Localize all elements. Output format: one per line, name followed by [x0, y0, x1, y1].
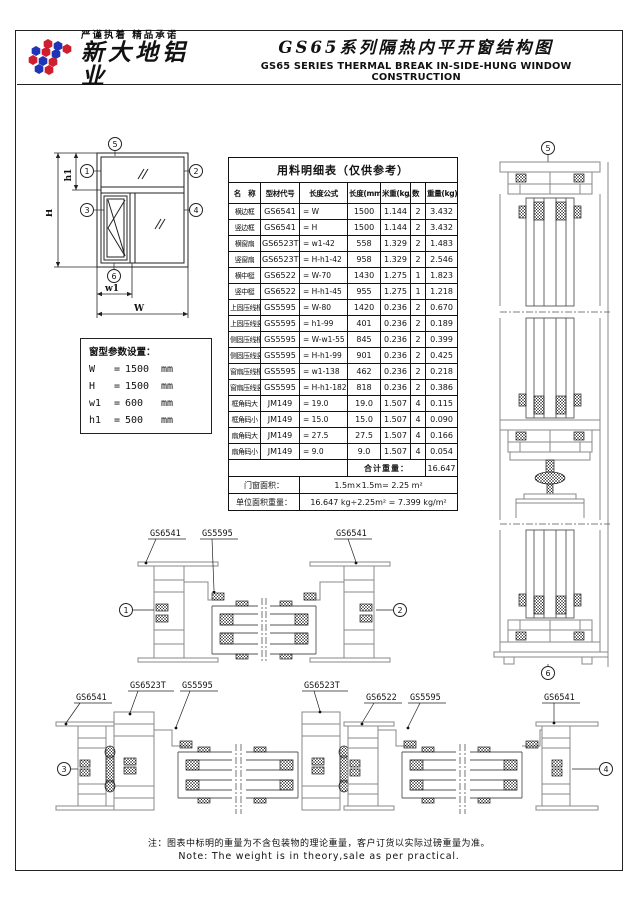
cell-length: 1420 [348, 300, 381, 316]
cell-length: 845 [348, 332, 381, 348]
callout-1: 1 [84, 167, 89, 176]
cell-length: 462 [348, 364, 381, 380]
cell-weight: 0.115 [426, 396, 458, 412]
cell-meter-weight: 1.329 [381, 252, 411, 268]
column-header: 长度(mm) [348, 183, 381, 204]
callout-2: 2 [397, 606, 402, 615]
cell-length-formula: = W-80 [300, 300, 348, 316]
profile-label: GS5595 [202, 529, 233, 539]
cell-length-formula: = H-h1-42 [300, 252, 348, 268]
total-label: 合计重量： [348, 460, 426, 477]
cell-profile-code: GS6522 [261, 284, 300, 300]
footer-note: 注：图表中标明的重量为不含包装物的理论重量，客户订货以实际过磅重量为准。 Not… [17, 836, 621, 862]
cell-name: 竖边框 [229, 220, 261, 236]
callout-5: 5 [112, 140, 117, 149]
table-row: 侧固压线横 GS5595 = W-w1-55 845 0.236 2 0.399 [229, 332, 458, 348]
cell-profile-code: GS5595 [261, 380, 300, 396]
cell-profile-code: GS5595 [261, 332, 300, 348]
cell-meter-weight: 1.507 [381, 428, 411, 444]
param-row: H = 1500 mm [89, 378, 203, 395]
table-row: 横窗扇 GS6523T = w1-42 558 1.329 2 1.483 [229, 236, 458, 252]
sheet-title-cn: GS65系列隔热内平开窗结构图 [215, 34, 617, 58]
cell-length-formula: = 9.0 [300, 444, 348, 460]
cell-length: 1500 [348, 220, 381, 236]
param-value: 1500 [125, 381, 161, 392]
param-row: w1 = 600 mm [89, 395, 203, 412]
cell-length-formula: = h1-99 [300, 316, 348, 332]
cell-qty: 4 [411, 428, 426, 444]
cell-profile-code: GS5595 [261, 316, 300, 332]
column-header: 名 称 [229, 183, 261, 204]
param-unit: mm [161, 415, 173, 426]
param-unit: mm [161, 381, 173, 392]
cell-weight: 0.166 [426, 428, 458, 444]
section-1-drawing [138, 562, 262, 662]
table-row: 侧固压线竖 GS5595 = H-h1-99 901 0.236 2 0.425 [229, 348, 458, 364]
drawing-sheet: 严谨执着 精品承诺 新大地铝业 GS65系列隔热内平开窗结构图 GS65 SER… [0, 0, 640, 906]
column-header: 重量(kg) [426, 183, 458, 204]
cell-meter-weight: 1.275 [381, 268, 411, 284]
table-row: 竖窗扇 GS6523T = H-h1-42 958 1.329 2 2.546 [229, 252, 458, 268]
cell-meter-weight: 0.236 [381, 380, 411, 396]
cell-length-formula: = 27.5 [300, 428, 348, 444]
title-block: GS65系列隔热内平开窗结构图 GS65 SERIES THERMAL BREA… [215, 34, 621, 83]
param-name: h1 [89, 415, 109, 426]
cell-name: 窗扇压线竖 [229, 380, 261, 396]
cell-name: 竖中梃 [229, 284, 261, 300]
window-elevation-diagram: H h1 W w1 5 1 [46, 130, 236, 335]
table-body: 横边框 GS6541 = W 1500 1.144 2 3.432 竖边框 GS… [229, 204, 458, 460]
section-2-drawing [266, 562, 390, 662]
profile-label: GS6541 [150, 529, 181, 539]
cell-qty: 2 [411, 348, 426, 364]
cell-length: 9.0 [348, 444, 381, 460]
param-equals: = [109, 364, 125, 375]
area-label: 门窗面积： [229, 477, 300, 494]
profile-label: GS6541 [76, 693, 107, 703]
cell-length-formula: = w1-42 [300, 236, 348, 252]
unit-weight-label: 单位面积重量： [229, 494, 300, 511]
callout-6: 6 [111, 272, 116, 281]
column-header: 数 量 [411, 183, 426, 204]
cell-weight: 0.090 [426, 412, 458, 428]
cell-length: 19.0 [348, 396, 381, 412]
param-unit: mm [161, 398, 173, 409]
cell-meter-weight: 0.236 [381, 316, 411, 332]
cell-name: 框角码小 [229, 412, 261, 428]
cell-weight: 0.670 [426, 300, 458, 316]
dim-label-h1: h1 [64, 169, 74, 182]
cell-qty: 2 [411, 380, 426, 396]
total-value: 16.647 [426, 460, 458, 477]
cell-length: 558 [348, 236, 381, 252]
area-value: 1.5m×1.5m= 2.25 m² [300, 477, 458, 494]
param-equals: = [109, 381, 125, 392]
cell-length-formula: = W-70 [300, 268, 348, 284]
area-row: 门窗面积： 1.5m×1.5m= 2.25 m² [229, 477, 458, 494]
cell-qty: 2 [411, 220, 426, 236]
cell-qty: 2 [411, 316, 426, 332]
cell-name: 横窗扇 [229, 236, 261, 252]
cell-weight: 2.546 [426, 252, 458, 268]
cell-length-formula: = H-h1-99 [300, 348, 348, 364]
cell-length-formula: = 15.0 [300, 412, 348, 428]
param-value: 600 [125, 398, 161, 409]
cell-length-formula: = w1-138 [300, 364, 348, 380]
cell-name: 扇角码大 [229, 428, 261, 444]
cell-length: 27.5 [348, 428, 381, 444]
cell-qty: 4 [411, 444, 426, 460]
cell-length: 1500 [348, 204, 381, 220]
cell-meter-weight: 1.507 [381, 412, 411, 428]
param-value: 500 [125, 415, 161, 426]
sheet-title-en: GS65 SERIES THERMAL BREAK IN-SIDE-HUNG W… [215, 61, 617, 83]
cell-name: 横中梃 [229, 268, 261, 284]
table-row: 横边框 GS6541 = W 1500 1.144 2 3.432 [229, 204, 458, 220]
cell-profile-code: JM149 [261, 412, 300, 428]
cell-length-formula: = H-h1-45 [300, 284, 348, 300]
table-header-row: 名 称型材代号长度公式长度(mm)米重(kg/m)数 量重量(kg) [229, 183, 458, 204]
section-top-frame [500, 162, 600, 306]
param-name: W [89, 364, 109, 375]
profile-label: GS6523T [304, 681, 340, 691]
window-outline [97, 153, 188, 267]
params-title: 窗型参数设置： [89, 344, 203, 358]
dim-label-H: H [46, 208, 55, 217]
header: 严谨执着 精品承诺 新大地铝业 GS65系列隔热内平开窗结构图 GS65 SER… [17, 32, 621, 85]
cell-weight: 3.432 [426, 204, 458, 220]
section-middle-mullion [246, 712, 456, 810]
params-list: W = 1500 mm H = 1500 mm w1 = 600 mm [89, 361, 203, 429]
cell-profile-code: GS6541 [261, 204, 300, 220]
cell-name: 框角码大 [229, 396, 261, 412]
profile-label: GS6541 [336, 529, 367, 539]
unit-weight-row: 单位面积重量： 16.647 kg÷2.25m² = 7.399 kg/m² [229, 494, 458, 511]
cell-weight: 0.189 [426, 316, 458, 332]
cell-profile-code: GS6522 [261, 268, 300, 284]
column-header: 型材代号 [261, 183, 300, 204]
cell-length: 958 [348, 252, 381, 268]
cell-meter-weight: 0.236 [381, 348, 411, 364]
table-row: 竖边框 GS6541 = H 1500 1.144 2 3.432 [229, 220, 458, 236]
section-3-drawing [56, 712, 232, 810]
cell-name: 横边框 [229, 204, 261, 220]
cell-meter-weight: 1.275 [381, 284, 411, 300]
cell-name: 扇角码小 [229, 444, 261, 460]
cell-qty: 2 [411, 364, 426, 380]
cell-name: 上固压线横 [229, 300, 261, 316]
table-title-row: 用料明细表（仅供参考） [229, 158, 458, 183]
param-value: 1500 [125, 364, 161, 375]
param-unit: mm [161, 364, 173, 375]
cell-name: 上固压线竖 [229, 316, 261, 332]
cell-name: 侧固压线竖 [229, 348, 261, 364]
callout-2: 2 [193, 167, 198, 176]
cell-weight: 0.425 [426, 348, 458, 364]
callout-4: 4 [193, 206, 198, 215]
table-title: 用料明细表（仅供参考） [229, 158, 458, 183]
cell-length-formula: = 19.0 [300, 396, 348, 412]
callout-5: 5 [545, 144, 550, 153]
cell-meter-weight: 1.144 [381, 220, 411, 236]
table-row: 上固压线竖 GS5595 = h1-99 401 0.236 2 0.189 [229, 316, 458, 332]
cell-meter-weight: 1.144 [381, 204, 411, 220]
profile-label: GS5595 [182, 681, 213, 691]
cell-qty: 4 [411, 412, 426, 428]
cell-profile-code: GS5595 [261, 364, 300, 380]
company-logo [27, 38, 75, 78]
cell-qty: 1 [411, 284, 426, 300]
cell-length: 15.0 [348, 412, 381, 428]
cell-qty: 1 [411, 268, 426, 284]
unit-weight-value: 16.647 kg÷2.25m² = 7.399 kg/m² [300, 494, 458, 511]
brand-block: 严谨执着 精品承诺 新大地铝业 [81, 27, 215, 89]
cell-meter-weight: 1.507 [381, 396, 411, 412]
cell-weight: 0.054 [426, 444, 458, 460]
param-name: w1 [89, 398, 109, 409]
cell-qty: 2 [411, 204, 426, 220]
cell-meter-weight: 1.507 [381, 444, 411, 460]
table-row: 扇角码大 JM149 = 27.5 27.5 1.507 4 0.166 [229, 428, 458, 444]
cell-meter-weight: 1.329 [381, 236, 411, 252]
cell-length: 1430 [348, 268, 381, 284]
cell-qty: 2 [411, 300, 426, 316]
cell-meter-weight: 0.236 [381, 364, 411, 380]
company-name: 新大地铝业 [81, 41, 215, 89]
param-equals: = [109, 415, 125, 426]
section-transom [500, 318, 600, 520]
cell-profile-code: JM149 [261, 428, 300, 444]
cell-weight: 0.386 [426, 380, 458, 396]
cell-meter-weight: 0.236 [381, 332, 411, 348]
note-chinese: 注：图表中标明的重量为不含包装物的理论重量，客户订货以实际过磅重量为准。 [17, 836, 621, 849]
note-english: Note: The weight is in theory,sale as pe… [17, 851, 621, 862]
cell-length-formula: = H-h1-182 [300, 380, 348, 396]
column-header: 米重(kg/m) [381, 183, 411, 204]
dim-label-w1: w1 [104, 284, 119, 294]
cell-name: 窗扇压线横 [229, 364, 261, 380]
cell-length: 955 [348, 284, 381, 300]
table-row: 窗扇压线横 GS5595 = w1-138 462 0.236 2 0.218 [229, 364, 458, 380]
column-header: 长度公式 [300, 183, 348, 204]
cell-profile-code: GS6541 [261, 220, 300, 236]
mid-section-drawings: GS6541 GS5595 GS6541 1 2 [116, 526, 408, 668]
param-name: H [89, 381, 109, 392]
cell-qty: 2 [411, 236, 426, 252]
materials-table: 用料明细表（仅供参考） 名 称型材代号长度公式长度(mm)米重(kg/m)数 量… [228, 157, 458, 511]
table-row: 窗扇压线竖 GS5595 = H-h1-182 818 0.236 2 0.38… [229, 380, 458, 396]
cell-qty: 2 [411, 332, 426, 348]
window-params-panel: 窗型参数设置： W = 1500 mm H = 1500 mm w1 [80, 338, 212, 434]
cell-length: 401 [348, 316, 381, 332]
cell-meter-weight: 0.236 [381, 300, 411, 316]
table-row: 框角码小 JM149 = 15.0 15.0 1.507 4 0.090 [229, 412, 458, 428]
callout-3: 3 [61, 765, 66, 774]
profile-label: GS6541 [544, 693, 575, 703]
cell-weight: 1.218 [426, 284, 458, 300]
cell-length-formula: = H [300, 220, 348, 236]
param-equals: = [109, 398, 125, 409]
cell-length-formula: = W [300, 204, 348, 220]
param-row: W = 1500 mm [89, 361, 203, 378]
cell-profile-code: GS6523T [261, 252, 300, 268]
cell-profile-code: GS5595 [261, 348, 300, 364]
table-row: 框角码大 JM149 = 19.0 19.0 1.507 4 0.115 [229, 396, 458, 412]
section-bottom-frame [494, 530, 608, 664]
cell-qty: 4 [411, 396, 426, 412]
param-row: h1 = 500 mm [89, 412, 203, 429]
profile-label: GS6523T [130, 681, 166, 691]
cell-profile-code: GS6523T [261, 236, 300, 252]
table-row: 扇角码小 JM149 = 9.0 9.0 1.507 4 0.054 [229, 444, 458, 460]
table-row: 竖中梃 GS6522 = H-h1-45 955 1.275 1 1.218 [229, 284, 458, 300]
cell-qty: 2 [411, 252, 426, 268]
cell-profile-code: JM149 [261, 396, 300, 412]
glass-marks [138, 169, 165, 229]
cell-weight: 1.483 [426, 236, 458, 252]
table-row: 上固压线横 GS5595 = W-80 1420 0.236 2 0.670 [229, 300, 458, 316]
cell-weight: 0.399 [426, 332, 458, 348]
callout-1: 1 [123, 606, 128, 615]
callout-3: 3 [84, 206, 89, 215]
cell-weight: 3.432 [426, 220, 458, 236]
cell-profile-code: JM149 [261, 444, 300, 460]
cell-profile-code: GS5595 [261, 300, 300, 316]
total-spacer [229, 460, 348, 477]
vertical-section-strip: 5 [490, 136, 624, 681]
dim-label-W: W [133, 304, 145, 314]
table-row: 横中梃 GS6522 = W-70 1430 1.275 1 1.823 [229, 268, 458, 284]
cell-weight: 1.823 [426, 268, 458, 284]
dimension-lines [54, 153, 188, 318]
callout-4: 4 [603, 765, 608, 774]
cell-length-formula: = W-w1-55 [300, 332, 348, 348]
cell-name: 侧固压线横 [229, 332, 261, 348]
cell-weight: 0.218 [426, 364, 458, 380]
cell-length: 901 [348, 348, 381, 364]
bottom-section-drawings: GS6541 GS6523T GS5595 GS6523T GS6522 GS5… [50, 672, 625, 830]
total-row: 合计重量： 16.647 [229, 460, 458, 477]
section-4-drawing [470, 722, 598, 810]
cell-name: 竖窗扇 [229, 252, 261, 268]
profile-label: GS5595 [410, 693, 441, 703]
profile-label: GS6522 [366, 693, 397, 703]
cell-length: 818 [348, 380, 381, 396]
